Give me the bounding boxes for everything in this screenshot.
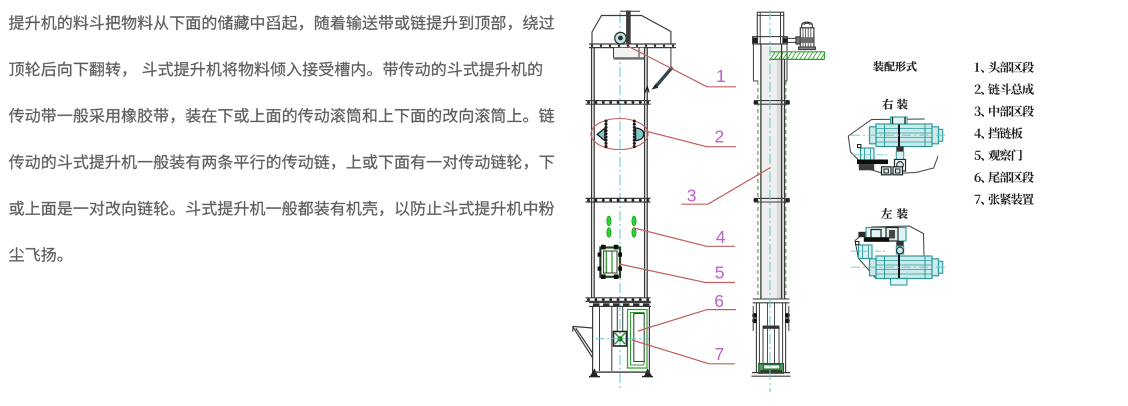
svg-text:2: 2: [715, 127, 725, 147]
svg-text:3: 3: [687, 186, 697, 206]
svg-text:1: 1: [716, 66, 726, 86]
svg-text:5: 5: [715, 263, 725, 283]
svg-text:4: 4: [716, 227, 726, 247]
svg-text:6: 6: [714, 291, 724, 311]
svg-text:7: 7: [715, 344, 725, 364]
